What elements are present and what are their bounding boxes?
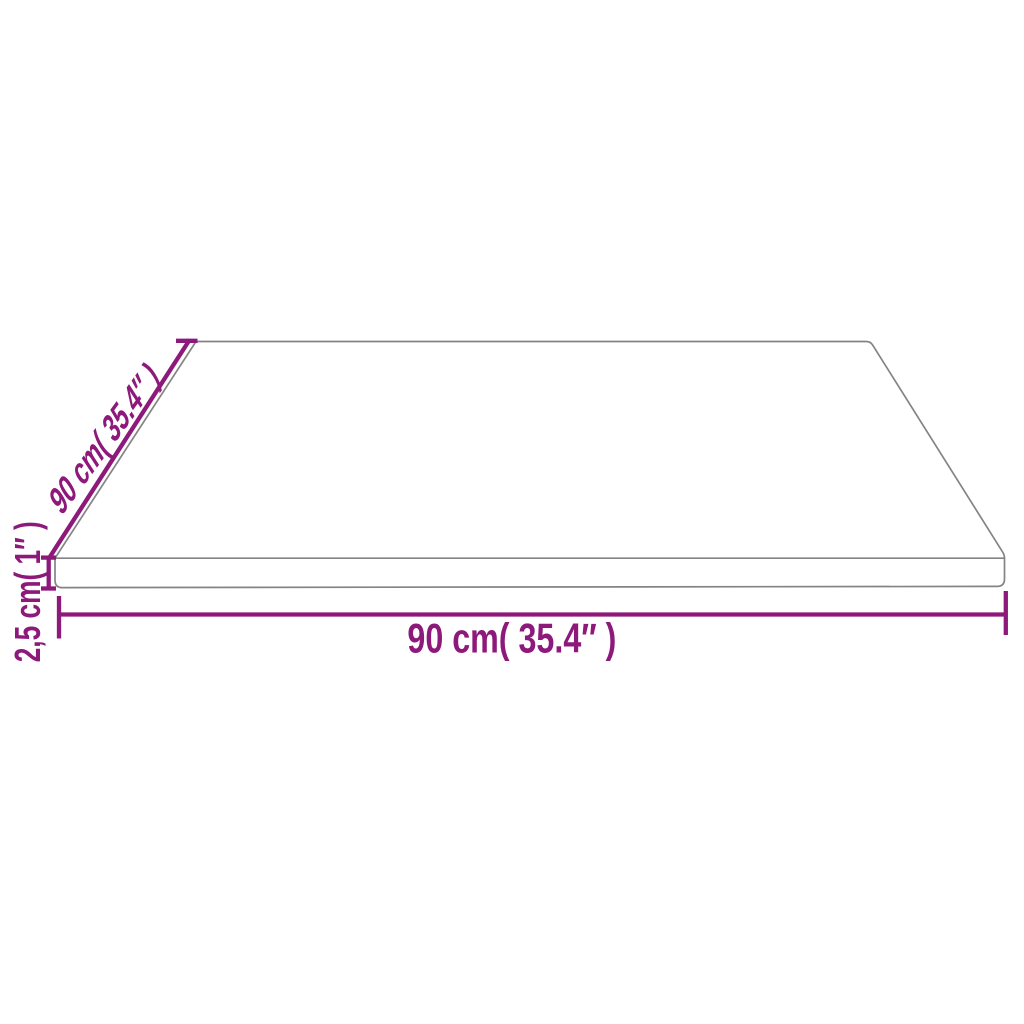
svg-text:90 cm( 35.4″ ): 90 cm( 35.4″ ) (407, 614, 616, 661)
svg-text:2,5 cm( 1″ ): 2,5 cm( 1″ ) (7, 521, 48, 662)
